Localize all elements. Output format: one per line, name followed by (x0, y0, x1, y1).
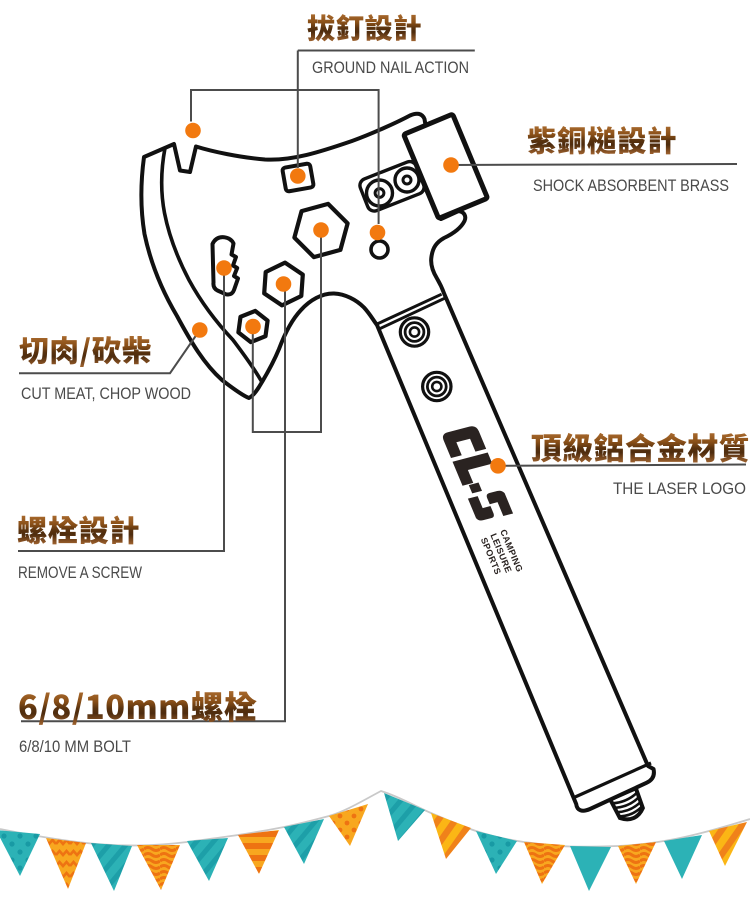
svg-text:GROUND NAIL ACTION: GROUND NAIL ACTION (312, 59, 469, 77)
svg-text:6/8/10 MM BOLT: 6/8/10 MM BOLT (19, 738, 131, 756)
svg-text:SHOCK ABSORBENT BRASS: SHOCK ABSORBENT BRASS (533, 177, 729, 195)
svg-text:THE LASER LOGO: THE LASER LOGO (613, 480, 746, 498)
svg-text:REMOVE A SCREW: REMOVE A SCREW (18, 564, 142, 582)
svg-text:CUT MEAT, CHOP WOOD: CUT MEAT, CHOP WOOD (21, 385, 191, 403)
